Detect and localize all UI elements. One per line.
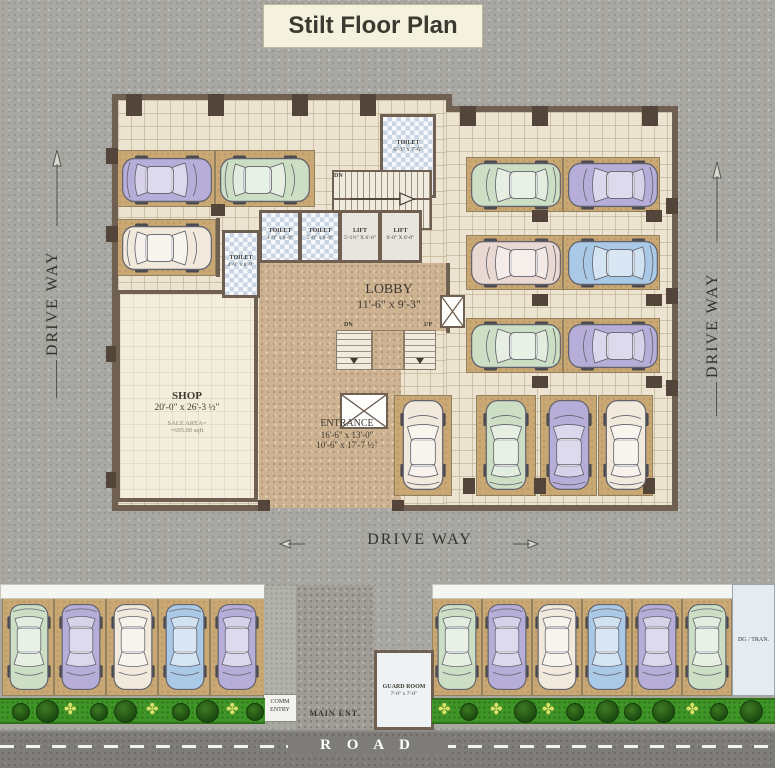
driveway-right-label: DRIVE WAY [704,248,722,378]
car [546,399,592,491]
column-marker [666,198,678,214]
stilt-floor-plan: Stilt Floor Plan SHOP 20'-0" x 26'-3 ½" … [0,0,775,768]
entrance-dims-1: 16'-6" x 13'-0" [282,430,412,440]
column-marker [126,94,142,116]
lower-stairs-dn-label: DN [344,322,353,328]
hedge-bush-icon [566,703,584,721]
lift-a-name: LIFT [339,228,381,235]
entrance-dims-2: 10'-6" x 17'-7 ½" [282,440,412,450]
car [470,160,562,210]
lift-b-label: LIFT 6'-0" X 6'-0" [379,228,422,241]
column-marker [463,478,475,494]
car [635,603,679,691]
comm-entry-line2: ENTRY [264,707,296,715]
car-body [470,321,562,371]
lower-stairs-right-flight [404,330,436,370]
car-body [485,603,529,691]
lower-stairs-landing [372,330,404,370]
hedge-bush-icon [740,700,763,723]
column-marker [211,204,225,216]
lobby-label: LOBBY 11'-6" x 9'-3" [330,282,448,312]
stairs-down-arrow-icon [350,358,358,364]
car-body [163,603,207,691]
column-marker [532,106,548,126]
guard-room-label: GUARD ROOM 7'-0" x 7'-0" [374,684,434,697]
x-cross-icon [442,297,463,326]
toilet-b-name: TOILET [299,228,341,235]
car-body [7,603,51,691]
hedge-bush-icon [460,703,478,721]
driveway-left-label: DRIVE WAY [44,226,62,356]
road: R O A D [0,730,775,768]
dg-transformer-label: DG / TRAN. [738,637,769,643]
toilet-b-dims: 5'-0" x 6'-9" [299,235,341,241]
car-body [111,603,155,691]
hedge-bush-icon [652,700,675,723]
car [219,155,311,205]
entrance-name: ENTRANCE [282,418,412,430]
stairs-direction-arrow-icon [348,190,418,208]
hedge-bush-icon [246,703,264,721]
column-marker [646,210,662,222]
driveway-arrow-left-icon [278,538,306,550]
hedge-bush-icon [114,700,137,723]
driveway-bottom-label: DRIVE WAY [340,531,500,549]
toilet-top-dims: 6'-3" x 7'-6" [380,147,436,154]
hedge-bush-icon [196,700,219,723]
car-body [603,399,649,491]
main-entrance-area: MAIN ENT. [296,586,374,730]
car [121,155,213,205]
entrance-label: ENTRANCE 16'-6" x 13'-0" 10'-6" x 17'-7 … [282,418,412,450]
column-marker [106,226,118,242]
hedge-bush-icon [710,703,728,721]
column-marker [392,500,404,511]
car-body [585,603,629,691]
car [685,603,729,691]
column-marker [532,210,548,222]
title-box: Stilt Floor Plan [263,4,483,48]
car [567,160,659,210]
lower-stairs-left-flight [336,330,372,370]
toilet-left-name: TOILET [222,255,260,262]
car [59,603,103,691]
hedge-flower-icon: ✤ [226,703,239,718]
walkway-band-right [432,584,775,599]
shop-label: SHOP 20'-0" x 26'-3 ½" SALE AREA= =695.0… [126,390,248,435]
driveway-right-arrow-icon [710,160,724,242]
driveway-left-line [56,360,57,398]
column-marker [532,376,548,388]
hedge-bush-icon [596,700,619,723]
car [585,603,629,691]
hedge-flower-icon: ✤ [686,703,699,718]
hedge-bush-icon [36,700,59,723]
car [111,603,155,691]
car [435,603,479,691]
hedge-bush-icon [90,703,108,721]
lobby-name: LOBBY [330,282,448,298]
hedge-bush-icon [172,703,190,721]
stairs-down-arrow-icon [416,358,424,364]
car-body [685,603,729,691]
car-body [483,399,529,491]
column-marker [360,94,376,116]
car [567,238,659,288]
car-body [567,238,659,288]
car [567,321,659,371]
column-marker [666,380,678,396]
car [470,321,562,371]
car-body [435,603,479,691]
car [163,603,207,691]
comm-entry-line1: COMM [264,699,296,707]
column-marker [532,294,548,306]
hedge-bush-icon [624,703,642,721]
car-body [121,223,213,273]
toilet-a-name: TOILET [259,228,301,235]
main-entrance-label: MAIN ENT. [296,709,374,718]
hedge-flower-icon: ✤ [490,703,503,718]
car-body [567,321,659,371]
car [7,603,51,691]
shop-sale-area-1: SALE AREA= [126,420,248,427]
car [400,399,446,491]
toilet-left-label: TOILET 4'-9" x 8'-9" [222,255,260,268]
lift-b-name: LIFT [379,228,422,235]
wall-segment [112,94,452,100]
column-marker [208,94,224,116]
column-marker [292,94,308,116]
shaft-x-box [440,295,465,328]
shop-dims: 20'-0" x 26'-3 ½" [126,403,248,414]
toilet-a-dims: 4'-9" x 6'-9" [259,235,301,241]
toilet-left-dims: 4'-9" x 8'-9" [222,262,260,268]
car [603,399,649,491]
car [483,399,529,491]
column-marker [646,376,662,388]
car-body [470,160,562,210]
car [485,603,529,691]
lower-stairs-up-label: UP [424,322,432,328]
car-body [121,155,213,205]
car [470,238,562,288]
column-marker [534,478,546,494]
car-body [546,399,592,491]
car-body [59,603,103,691]
column-marker [106,148,118,164]
column-marker [666,288,678,304]
lift-b-dims: 6'-0" X 6'-0" [379,235,422,241]
road-label: R O A D [288,737,448,754]
hedge-flower-icon: ✤ [542,703,555,718]
column-marker [646,294,662,306]
dg-transformer-room: DG / TRAN. [732,584,775,696]
car-body [567,160,659,210]
wall-segment [112,505,264,511]
upper-stairs-dn-label: DN [334,173,343,179]
comm-entry-box: COMM ENTRY [263,694,297,722]
lobby-dims: 11'-6" x 9'-3" [330,298,448,312]
column-marker [460,106,476,126]
column-marker [258,500,270,511]
hedge-flower-icon: ✤ [438,703,451,718]
car [215,603,259,691]
wall-segment [216,218,220,277]
shop-sale-area-2: =695.00 sqft [126,427,248,434]
toilet-top-label: TOILET 6'-3" x 7'-6" [380,140,436,154]
toilet-b-label: TOILET 5'-0" x 6'-9" [299,228,341,241]
shop-name: SHOP [126,390,248,403]
hedge-flower-icon: ✤ [64,703,77,718]
guard-room-dims: 7'-0" x 7'-0" [374,691,434,697]
car-body [535,603,579,691]
guard-room-name: GUARD ROOM [374,684,434,691]
page-title: Stilt Floor Plan [288,12,457,40]
hedge-flower-icon: ✤ [146,703,159,718]
car [535,603,579,691]
car-body [470,238,562,288]
wall-segment [396,505,678,511]
lift-a-label: LIFT 5'-1½" X 6'-0" [339,228,381,241]
car-body [215,603,259,691]
driveway-arrow-right-icon [512,538,540,550]
walkway-band-left [0,584,265,599]
toilet-a-label: TOILET 4'-9" x 6'-9" [259,228,301,241]
comm-entry-path [264,586,296,698]
lift-a-dims: 5'-1½" X 6'-0" [339,235,381,241]
column-marker [642,106,658,126]
driveway-left-arrow-icon [50,148,64,226]
wall-segment [672,112,678,511]
car-body [219,155,311,205]
hedge-bush-icon [514,700,537,723]
car-body [400,399,446,491]
car-body [635,603,679,691]
toilet-top-name: TOILET [380,140,436,147]
driveway-right-line [716,382,717,416]
car [121,223,213,273]
hedge-bush-icon [12,703,30,721]
